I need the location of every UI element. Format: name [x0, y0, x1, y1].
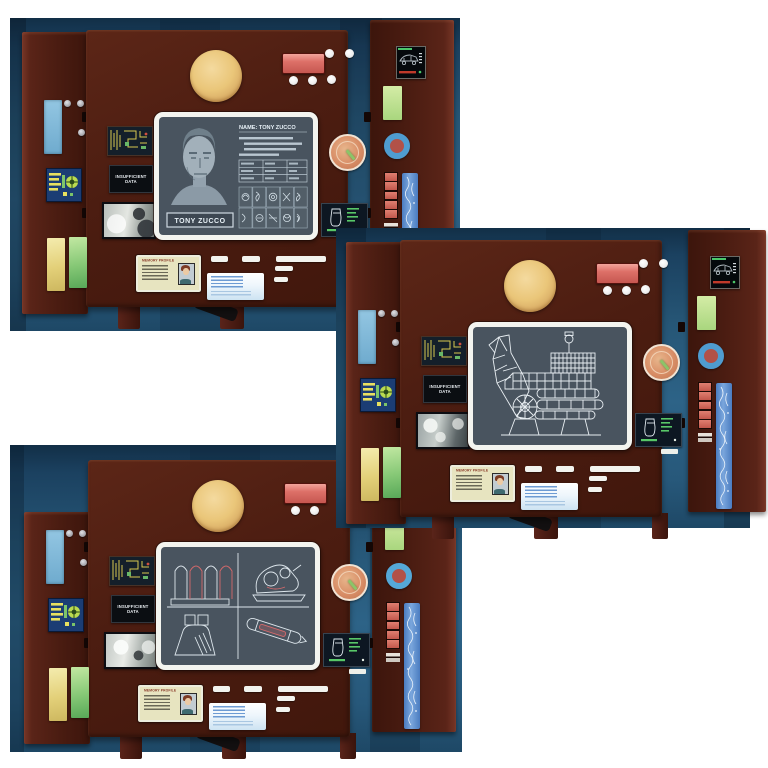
card-portrait: [180, 693, 197, 715]
gauge-sticker: [46, 168, 82, 202]
circuit-sticker: [109, 556, 155, 586]
readout-card: [521, 483, 578, 510]
photo-sticker: [416, 412, 470, 449]
white-dash: [213, 686, 230, 692]
circuit-icon: [110, 557, 152, 583]
scan-readout-icon: [636, 414, 679, 444]
suspect-profile-screen-graphic: TONY ZUCCO NAME: TONY ZUCCO: [159, 117, 313, 235]
gold-disc: [190, 50, 242, 102]
white-dash: [588, 487, 602, 492]
main-screen: TONY ZUCCO NAME: TONY ZUCCO: [154, 112, 318, 240]
white-bar: [661, 449, 678, 454]
main-screen: [468, 322, 632, 450]
screw: [378, 310, 385, 317]
equipment-schematics-screen-graphic: [161, 547, 315, 665]
portrait-body: [494, 489, 505, 494]
screw: [64, 100, 71, 107]
screw: [79, 530, 86, 537]
memory-card-title: MEMORY PROFILE: [142, 259, 174, 263]
blue-ring-button: [384, 133, 410, 159]
round-white-button: [291, 506, 300, 515]
portrait-face: [185, 698, 191, 705]
gold-disc: [192, 480, 244, 532]
blue-light-panel: [358, 310, 376, 364]
white-dash: [589, 476, 607, 481]
screw: [77, 100, 84, 107]
readout-card: [207, 273, 264, 300]
blue-ring-button: [386, 563, 412, 589]
white-dash: [525, 466, 542, 472]
white-dash: [275, 266, 293, 271]
blue-light-panel: [46, 530, 64, 584]
svg-text:NAME: TONY ZUCCO: NAME: TONY ZUCCO: [239, 125, 296, 131]
circuit-sticker: [107, 126, 153, 156]
memory-profile-card: MEMORY PROFILE: [450, 465, 515, 502]
white-dash: [277, 696, 295, 701]
memory-profile-card: MEMORY PROFILE: [138, 685, 203, 722]
gray-segment-pair: [698, 433, 712, 442]
gauge-icon: [47, 169, 79, 199]
gauge-icon: [361, 379, 393, 409]
round-white-button: [325, 49, 334, 58]
white-dash: [276, 707, 290, 712]
insufficient-data-label: INSUFFICIENTDATA: [111, 595, 155, 623]
green-light-panel: [69, 237, 87, 288]
yellow-light-panel: [361, 448, 379, 501]
hinge: [364, 112, 371, 122]
white-dash: [556, 466, 574, 472]
photo-sticker: [104, 632, 158, 669]
trace-lines-icon: [404, 603, 420, 729]
blue-trace-strip: [404, 603, 420, 729]
circuit-sticker: [421, 336, 467, 366]
gray-segment-pair: [386, 653, 400, 662]
hinge: [366, 542, 373, 552]
screw: [78, 129, 85, 136]
readout-card: [209, 703, 266, 730]
card-text-lines: [456, 475, 482, 492]
gauge-sticker: [360, 378, 396, 412]
blue-trace-strip: [716, 383, 732, 509]
pale-green-light-panel: [697, 296, 716, 330]
card-text-lines: [211, 291, 251, 297]
insufficient-data-label: INSUFFICIENTDATA: [423, 375, 467, 403]
circuit-icon: [422, 337, 464, 363]
round-white-button: [622, 286, 631, 295]
red-button: [284, 483, 327, 504]
white-dash: [211, 256, 228, 262]
card-text-lines: [525, 501, 565, 507]
card-text-lines: [211, 276, 243, 289]
vehicle-sticker: [710, 256, 740, 289]
memory-card-title: MEMORY PROFILE: [456, 469, 488, 473]
insufficient-data-label: INSUFFICIENTDATA: [109, 165, 153, 193]
card-text-lines: [142, 265, 168, 282]
white-dash: [242, 256, 260, 262]
screw: [392, 339, 399, 346]
product-photo: INSUFFICIENTDATA: [0, 0, 768, 768]
circuit-icon: [108, 127, 150, 153]
round-white-button: [603, 286, 612, 295]
green-light-panel: [71, 667, 89, 718]
screw: [66, 530, 73, 537]
card-text-lines: [144, 695, 170, 712]
red-segment-stack: [384, 172, 398, 219]
yellow-light-panel: [47, 238, 65, 291]
hinge: [678, 322, 685, 332]
green-light-panel: [383, 447, 401, 498]
card-text-lines: [213, 706, 245, 719]
screen-display: TONY ZUCCO NAME: TONY ZUCCO: [159, 117, 313, 235]
red-button: [282, 53, 325, 74]
white-dash: [274, 277, 288, 282]
vehicle-icon: [711, 257, 737, 286]
insufficient-data-text: INSUFFICIENTDATA: [115, 175, 146, 184]
card-portrait: [492, 473, 509, 495]
radar-dial: [331, 564, 368, 601]
round-white-button: [310, 506, 319, 515]
screen-display: [161, 547, 315, 665]
console-machine-schematic: INSUFFICIENTDATA: [322, 226, 768, 542]
card-portrait: [178, 263, 195, 285]
round-white-button: [345, 49, 354, 58]
white-dash: [278, 686, 328, 692]
memory-profile-card: MEMORY PROFILE: [136, 255, 201, 292]
portrait-body: [180, 279, 191, 284]
round-white-button: [659, 259, 668, 268]
radar-dial: [329, 134, 366, 171]
yellow-light-panel: [49, 668, 67, 721]
blue-light-panel: [44, 100, 62, 154]
trace-lines-icon: [716, 383, 732, 509]
svg-text:TONY ZUCCO: TONY ZUCCO: [174, 218, 225, 225]
pale-green-light-panel: [383, 86, 402, 120]
round-white-button: [308, 76, 317, 85]
portrait-face: [183, 268, 189, 275]
white-dash: [244, 686, 262, 692]
radar-dial: [643, 344, 680, 381]
round-white-button: [327, 75, 336, 84]
gauge-sticker: [48, 598, 84, 632]
portrait-face: [497, 478, 503, 485]
blue-ring-button: [698, 343, 724, 369]
insufficient-data-text: INSUFFICIENTDATA: [117, 605, 148, 614]
white-dash: [590, 466, 640, 472]
round-white-button: [289, 76, 298, 85]
gold-disc: [504, 260, 556, 312]
card-text-lines: [525, 486, 557, 499]
red-segment-stack: [386, 602, 400, 649]
red-segment-stack: [698, 382, 712, 429]
white-bar: [349, 669, 366, 674]
round-white-button: [639, 259, 648, 268]
gauge-icon: [49, 599, 81, 629]
screw: [391, 310, 398, 317]
red-button: [596, 263, 639, 284]
insufficient-data-text: INSUFFICIENTDATA: [429, 385, 460, 394]
scan-readout-sticker: [635, 413, 682, 447]
scan-readout-icon: [324, 634, 367, 664]
scan-readout-sticker: [323, 633, 370, 667]
screen-display: [473, 327, 627, 445]
round-white-button: [641, 285, 650, 294]
memory-card-title: MEMORY PROFILE: [144, 689, 176, 693]
vehicle-sticker: [396, 46, 426, 79]
machine-schematic-screen-graphic: [473, 327, 627, 445]
white-dash: [276, 256, 326, 262]
card-text-lines: [213, 721, 253, 727]
vehicle-icon: [397, 47, 423, 76]
main-screen: [156, 542, 320, 670]
portrait-body: [182, 709, 193, 714]
photo-sticker: [102, 202, 156, 239]
screw: [80, 559, 87, 566]
